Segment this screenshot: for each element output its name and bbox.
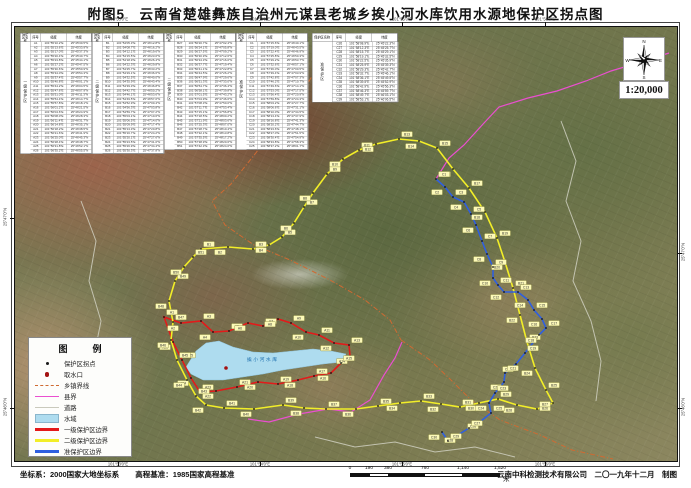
coordinate-table-group: 保护区名称序号经度纬度二级保护区B27101°56′20.7″E25°47′02…	[164, 33, 236, 150]
turning-point-tag-label: C6	[466, 229, 470, 233]
scale-bar: 01903807601,1401,520 米	[350, 465, 520, 481]
turning-point-dot	[212, 331, 214, 333]
scale-bar-tick: 380	[383, 466, 391, 471]
legend-item: 乡镇界线	[35, 380, 127, 391]
turning-point-tag-label: B30	[468, 407, 474, 411]
turning-point-dot	[418, 140, 420, 142]
turning-point-tag-label: A13	[354, 339, 360, 343]
turning-point-tag-label: B28	[506, 409, 512, 413]
县界-symbol-icon	[35, 396, 59, 397]
turning-point-dot	[536, 408, 538, 410]
turning-point-dot	[325, 408, 327, 410]
column-header: 纬度	[66, 34, 91, 42]
turning-point-dot	[488, 402, 490, 404]
column-header: 经度	[257, 34, 282, 42]
zone-label: 准保护区	[237, 42, 247, 137]
turning-point-dot	[340, 362, 342, 364]
turning-point-tag-label: B3	[259, 243, 263, 247]
scale-bar-track	[350, 473, 500, 477]
turning-point-tag-label: C3	[459, 191, 463, 195]
turning-point-tag-label: B46	[160, 344, 166, 348]
column-header: 保护区名称	[313, 34, 333, 42]
turning-point-dot	[516, 404, 518, 406]
turning-point-dot	[533, 309, 535, 311]
turning-point-tag-label: B42	[195, 409, 201, 413]
quasi-protection-boundary	[436, 179, 546, 441]
turning-point-tag-label: C21	[510, 367, 516, 371]
scale-bar-tick: 1,520	[494, 466, 506, 471]
turning-point-tag-label: A10	[295, 336, 301, 340]
legend-item-label: 道路	[64, 403, 77, 412]
turning-point-tag-label: B47	[178, 316, 184, 320]
column-header: 纬度	[210, 34, 235, 42]
turning-point-dot	[268, 244, 270, 246]
legend-item-label: 县界	[64, 392, 77, 401]
turning-point-tag-label: B29	[503, 393, 509, 397]
turning-point-dot	[492, 277, 494, 279]
turning-point-dot	[172, 321, 174, 323]
turning-point-dot	[481, 240, 483, 242]
column-header: 序号	[102, 34, 113, 42]
height-datum-note: 高程基准：1985国家高程基准	[135, 470, 234, 479]
turning-point-dot	[293, 222, 295, 224]
turning-point-tag-label: A2	[171, 327, 175, 331]
turning-point-tag-label: B10	[332, 163, 338, 167]
turning-point-dot	[200, 320, 202, 322]
turning-point-dot	[277, 318, 279, 320]
turning-point-dot	[545, 327, 547, 329]
turning-point-dot	[253, 408, 255, 410]
turning-point-tag-label: A18	[287, 384, 293, 388]
turning-point-dot	[459, 406, 461, 408]
table-row: C39101°58′53.1″E25°46′06.5″N	[333, 98, 399, 102]
turning-point-tag-label: B38	[293, 412, 299, 416]
turning-point-dot	[440, 403, 442, 405]
turning-point-tag-label: B27	[542, 403, 548, 407]
legend-item: 二级保护区边界	[35, 435, 127, 446]
turning-point-tag-label: B20	[494, 266, 500, 270]
graticule-label: 25°46′0″N	[4, 393, 8, 420]
column-header: 序号	[332, 34, 346, 42]
turning-point-dot	[348, 344, 350, 346]
turning-point-tag-label: A16	[320, 377, 326, 381]
turning-point-tag-label: C19	[530, 347, 536, 351]
legend-item: 县界	[35, 391, 127, 402]
turning-point-tag-label: C25	[496, 407, 502, 411]
turning-point-dot	[375, 143, 377, 145]
turning-point-tag-label: C14	[517, 304, 523, 308]
legend-box: 图 例 保护区拐点取水口乡镇界线县界道路水域一级保护区边界二级保护区边界准保护区…	[28, 337, 132, 457]
table-row: C25101°58′37.2″E25°48′01.7″N	[247, 145, 309, 149]
turning-point-tag-label: C13	[523, 286, 529, 290]
turning-point-dot	[452, 168, 454, 170]
turning-point-tag-label: A22	[205, 395, 211, 399]
turning-point-tag-label: B2	[218, 251, 222, 255]
turning-point-dot	[497, 284, 499, 286]
道路-symbol-icon	[35, 407, 59, 408]
turning-point-tag-label: B9	[333, 168, 337, 172]
turning-point-dot	[305, 331, 307, 333]
legend-item-label: 一级保护区边界	[64, 425, 108, 434]
turning-point-dot	[355, 408, 357, 410]
turning-point-tag-label: A21	[242, 381, 248, 385]
turning-point-dot	[172, 341, 174, 343]
turning-point-tag-label: C5	[477, 208, 481, 212]
scale-bar-tick: 190	[365, 466, 373, 471]
turning-point-tag-label: C18	[528, 339, 534, 343]
turning-point-dot	[297, 379, 299, 381]
turning-point-dot	[257, 381, 259, 383]
准保护区边界-symbol-icon	[35, 450, 59, 452]
turning-point-dot	[228, 330, 230, 332]
road-line	[561, 121, 601, 401]
turning-point-tag-label: B26	[542, 407, 548, 411]
turning-point-tag-label: B25	[551, 384, 557, 388]
turning-point-dot	[247, 322, 249, 324]
column-header: 纬度	[138, 34, 163, 42]
turning-point-tag-label: A3	[207, 315, 211, 319]
turning-point-dot	[468, 187, 470, 189]
column-header: 经度	[185, 34, 210, 42]
scale-bar-unit: 米	[503, 473, 510, 483]
turning-point-dot	[435, 178, 437, 180]
turning-point-tag-label: B49	[180, 275, 186, 279]
column-header: 纬度	[282, 34, 307, 42]
turning-point-tag-label: A15	[346, 357, 352, 361]
turning-point-tag-label: B1	[207, 243, 211, 247]
turning-point-dot	[227, 246, 229, 248]
turning-point-tag-label: B4	[259, 249, 263, 253]
turning-point-dot	[463, 201, 465, 203]
turning-point-dot	[290, 322, 292, 324]
turning-point-tag-label: C4	[454, 206, 458, 210]
turning-point-dot	[538, 334, 540, 336]
compass-letter-w: W	[625, 58, 630, 63]
turning-point-tag-label: C7	[488, 235, 492, 239]
turning-point-tag-label: B41	[229, 402, 235, 406]
column-header: 保护区名称	[93, 34, 103, 42]
turning-point-dot	[312, 192, 314, 194]
scale-bar-tick: 0	[349, 466, 352, 471]
column-header: 序号	[246, 34, 257, 42]
column-header: 序号	[30, 34, 41, 42]
legend-item: 一级保护区边界	[35, 424, 127, 435]
zone-label: 准保护区	[313, 42, 333, 102]
legend-item: 准保护区边界	[35, 446, 127, 457]
turning-point-dot	[486, 253, 488, 255]
保护区拐点-symbol-icon	[35, 362, 59, 365]
turning-point-tag-label: B7	[310, 201, 314, 205]
legend-item-label: 取水口	[64, 370, 83, 379]
turning-point-tag-label: A19	[283, 378, 289, 382]
二级保护区边界-symbol-icon	[35, 439, 59, 441]
turning-point-dot	[436, 147, 438, 149]
一级保护区边界-symbol-icon	[35, 428, 59, 430]
turning-point-tag-label: A20	[247, 386, 253, 390]
turning-point-tag-label: B17	[474, 182, 480, 186]
乡镇界线-symbol-icon	[35, 385, 59, 386]
turning-point-dot	[313, 375, 315, 377]
turning-point-dot	[475, 224, 477, 226]
turning-point-tag-label: C24	[478, 407, 484, 411]
turning-point-dot	[342, 158, 344, 160]
turning-point-dot	[223, 407, 225, 409]
turning-point-dot	[441, 431, 443, 433]
turning-point-dot	[420, 400, 422, 402]
map-scale: 1:20,000	[619, 81, 669, 99]
turning-point-dot	[180, 322, 182, 324]
turning-point-dot	[545, 389, 547, 391]
turning-point-dot	[215, 390, 217, 392]
turning-point-dot	[444, 186, 446, 188]
turning-point-dot	[552, 402, 554, 404]
map-canvas: A1A2A3A4A5A6A7A8A9A10A11A12A13A14A15A16A…	[14, 26, 678, 462]
turning-point-tag-label: B5	[288, 231, 292, 235]
turning-point-dot	[492, 266, 494, 268]
graticule-label: 25°47′0″N	[682, 238, 686, 265]
column-header: 经度	[41, 34, 66, 42]
legend-item: 水域	[35, 413, 127, 424]
turning-point-dot	[447, 440, 449, 442]
turning-point-dot	[490, 412, 492, 414]
turning-point-tag-label: B19	[502, 232, 508, 236]
turning-point-tag-label: C8	[477, 258, 481, 262]
turning-point-tag-label: A9	[297, 317, 301, 321]
turning-point-tag-label: B15	[442, 142, 448, 146]
turning-point-dot	[326, 173, 328, 175]
turning-point-tag-label: B32	[430, 408, 436, 412]
turning-point-dot	[534, 367, 536, 369]
zone-label: 二级保护区	[165, 42, 175, 137]
turning-point-tag-label: B13	[404, 133, 410, 137]
coordinate-table-group: 保护区名称序号经度纬度准保护区C1101°57′15.6″E25°46′40.1…	[236, 33, 308, 150]
datum-note: 坐标系：2000国家大地坐标系 高程基准：1985国家高程基准	[20, 469, 248, 480]
table-row: B26101°55′30.3″E25°47′37.8″N	[103, 149, 165, 153]
turning-point-tag-label: B14	[408, 145, 414, 149]
turning-point-dot	[176, 359, 178, 361]
turning-point-dot	[519, 314, 521, 316]
turning-point-dot	[527, 299, 529, 301]
column-header: 序号	[174, 34, 185, 42]
turning-point-tag-label: B43	[201, 390, 207, 394]
turning-point-dot	[504, 372, 506, 374]
turning-point-tag-label: B6	[284, 227, 288, 231]
table-row: A26101°56′35.2″E25°46′55.5″N	[31, 149, 93, 153]
turning-point-dot	[470, 213, 472, 215]
compass-letter-e: E	[659, 58, 662, 63]
turning-point-tag-label: C9	[499, 261, 503, 265]
reservoir-name-label: 挨小河水库	[247, 356, 279, 363]
map-sheet: 附图5 云南省楚雄彝族自治州元谋县老城乡挨小河水库饮用水源地保护区拐点图 A1A…	[0, 0, 691, 488]
turning-point-tag-label: C29	[453, 435, 459, 439]
scale-bar-tick: 1,140	[456, 466, 468, 471]
graticule-label: 25°46′0″N	[682, 393, 686, 420]
turning-point-dot	[541, 318, 543, 320]
turning-point-dot	[377, 405, 379, 407]
turning-point-tag-label: B48	[158, 305, 164, 309]
road-line	[315, 437, 515, 457]
turning-point-tag-label: C11	[503, 279, 509, 283]
township-boundary-line	[401, 340, 613, 459]
compass-letter-n: N	[642, 39, 645, 44]
turning-point-tag-label: A6	[238, 327, 242, 331]
turning-point-tag-label: A17	[319, 370, 325, 374]
legend-item: 保护区拐点	[35, 358, 127, 369]
turning-point-tag-label: B35	[383, 400, 389, 404]
turning-point-dot	[190, 377, 192, 379]
turning-point-dot	[333, 342, 335, 344]
turning-point-dot	[524, 352, 526, 354]
coordinate-system-note: 坐标系：2000国家大地坐标系	[20, 470, 119, 479]
turning-point-dot	[205, 404, 207, 406]
turning-point-tag-label: C1	[442, 173, 446, 177]
turning-point-dot	[168, 300, 170, 302]
cartographer-credit: 云南中科检测技术有限公司 二〇一九年十二月 制图	[497, 469, 677, 480]
column-header: 经度	[346, 34, 372, 42]
legend-item-label: 准保护区边界	[64, 447, 102, 456]
legend-item: 道路	[35, 402, 127, 413]
turning-point-dot	[494, 392, 496, 394]
turning-point-dot	[318, 334, 320, 336]
scale-bar-tick: 760	[421, 466, 429, 471]
turning-point-tag-label: A4	[203, 336, 207, 340]
coordinate-table-group: 保护区名称序号经度纬度准保护区C26101°58′08.9″E25°45′22.…	[312, 33, 398, 103]
turning-point-dot	[398, 138, 400, 140]
column-header: 经度	[113, 34, 138, 42]
turning-point-dot	[282, 404, 284, 406]
turning-point-dot	[358, 149, 360, 151]
column-header: 保护区名称	[21, 34, 31, 42]
turning-point-dot	[195, 395, 197, 397]
table-row: B51101°57′42.3″E25°48′24.0″N	[175, 145, 237, 149]
turning-point-dot	[262, 325, 264, 327]
turning-point-dot	[330, 372, 332, 374]
coordinate-table-group: 保护区名称序号经度纬度一级保护区A1101°55′10.2″E25°45′30.…	[20, 33, 92, 154]
legend-item: 取水口	[35, 369, 127, 380]
turning-point-tag-label: C23	[500, 387, 506, 391]
column-header: 纬度	[372, 34, 398, 42]
turning-point-tag-label: B51	[198, 251, 204, 255]
compass-letter-s: S	[642, 75, 645, 80]
turning-point-dot	[468, 427, 470, 429]
turning-point-dot	[478, 402, 480, 404]
turning-point-tag-label: A1	[170, 311, 174, 315]
turning-point-tag-label: B24	[524, 372, 530, 376]
turning-point-dot	[503, 291, 505, 293]
turning-point-dot	[174, 280, 176, 282]
turning-point-dot	[183, 266, 185, 268]
turning-point-dot	[517, 291, 519, 293]
turning-point-dot	[512, 287, 514, 289]
turning-point-dot	[497, 398, 499, 400]
legend-item-label: 保护区拐点	[64, 359, 95, 368]
turning-point-dot	[503, 381, 505, 383]
zone-label: 二级保护区	[93, 42, 103, 141]
turning-point-tag-label: B40	[243, 413, 249, 417]
turning-point-tag-label: B12	[365, 148, 371, 152]
turning-point-dot	[192, 256, 194, 258]
legend-item-label: 二级保护区边界	[64, 436, 108, 445]
turning-point-tag-label: B8	[303, 197, 307, 201]
turning-point-tag-label: A11	[324, 329, 330, 333]
turning-point-dot	[303, 407, 305, 409]
turning-point-tag-label: B45	[182, 354, 188, 358]
turning-point-tag-label: B31	[465, 401, 471, 405]
turning-point-dot	[236, 386, 238, 388]
水域-symbol-icon	[35, 414, 59, 423]
turning-point-tag-label: C16	[531, 323, 537, 327]
column-header: 保护区名称	[237, 34, 247, 42]
turning-point-tag-label: B33	[426, 395, 432, 399]
graticule-label: 25°47′0″N	[4, 203, 8, 230]
turning-point-tag-label: B39	[288, 399, 294, 403]
turning-point-dot	[515, 363, 517, 365]
turning-point-dot	[281, 236, 283, 238]
turning-point-tag-label: B34	[389, 407, 395, 411]
compass-star-icon: NSWE	[624, 38, 664, 80]
turning-point-tag-label: A8	[268, 323, 272, 327]
turning-point-tag-label: C27	[474, 422, 480, 426]
turning-point-tag-label: C2	[435, 191, 439, 195]
turning-point-dot	[186, 379, 188, 381]
legend-item-label: 水域	[64, 414, 77, 423]
turning-point-dot	[277, 383, 279, 385]
turning-point-tag-label: B18	[474, 216, 480, 220]
coordinate-table-group: 保护区名称序号经度纬度二级保护区B1101°54′05.3″E25°46′12.…	[92, 33, 164, 154]
turning-point-tag-label: B36	[345, 413, 351, 417]
compass-rose: NSWE	[623, 37, 665, 81]
turning-point-tag-label: C17	[551, 322, 557, 326]
turning-point-tag-label: C10	[482, 282, 488, 286]
turning-point-tag-label: A12	[323, 347, 329, 351]
water-intake-point	[224, 366, 228, 370]
turning-point-tag-label: C12	[493, 296, 499, 300]
取水口-symbol-icon	[35, 372, 59, 377]
turning-point-dot	[252, 248, 254, 250]
turning-point-dot	[303, 206, 305, 208]
turning-point-tag-label: C15	[539, 304, 545, 308]
zone-label: 一级保护区	[21, 42, 31, 141]
turning-point-tag-label: B44	[176, 384, 182, 388]
legend-item-label: 乡镇界线	[64, 381, 89, 390]
legend-title: 图 例	[41, 342, 127, 355]
turning-point-dot	[452, 196, 454, 198]
turning-point-tag-label: C30	[431, 436, 437, 440]
column-header: 保护区名称	[165, 34, 175, 42]
turning-point-tag-label: B37	[331, 403, 337, 407]
turning-point-dot	[163, 316, 165, 318]
turning-point-tag-label: B22	[509, 319, 515, 323]
turning-point-dot	[170, 339, 172, 341]
turning-point-dot	[181, 359, 183, 361]
turning-point-dot	[496, 237, 498, 239]
turning-point-tag-label: B50	[173, 271, 179, 275]
turning-point-dot	[399, 402, 401, 404]
